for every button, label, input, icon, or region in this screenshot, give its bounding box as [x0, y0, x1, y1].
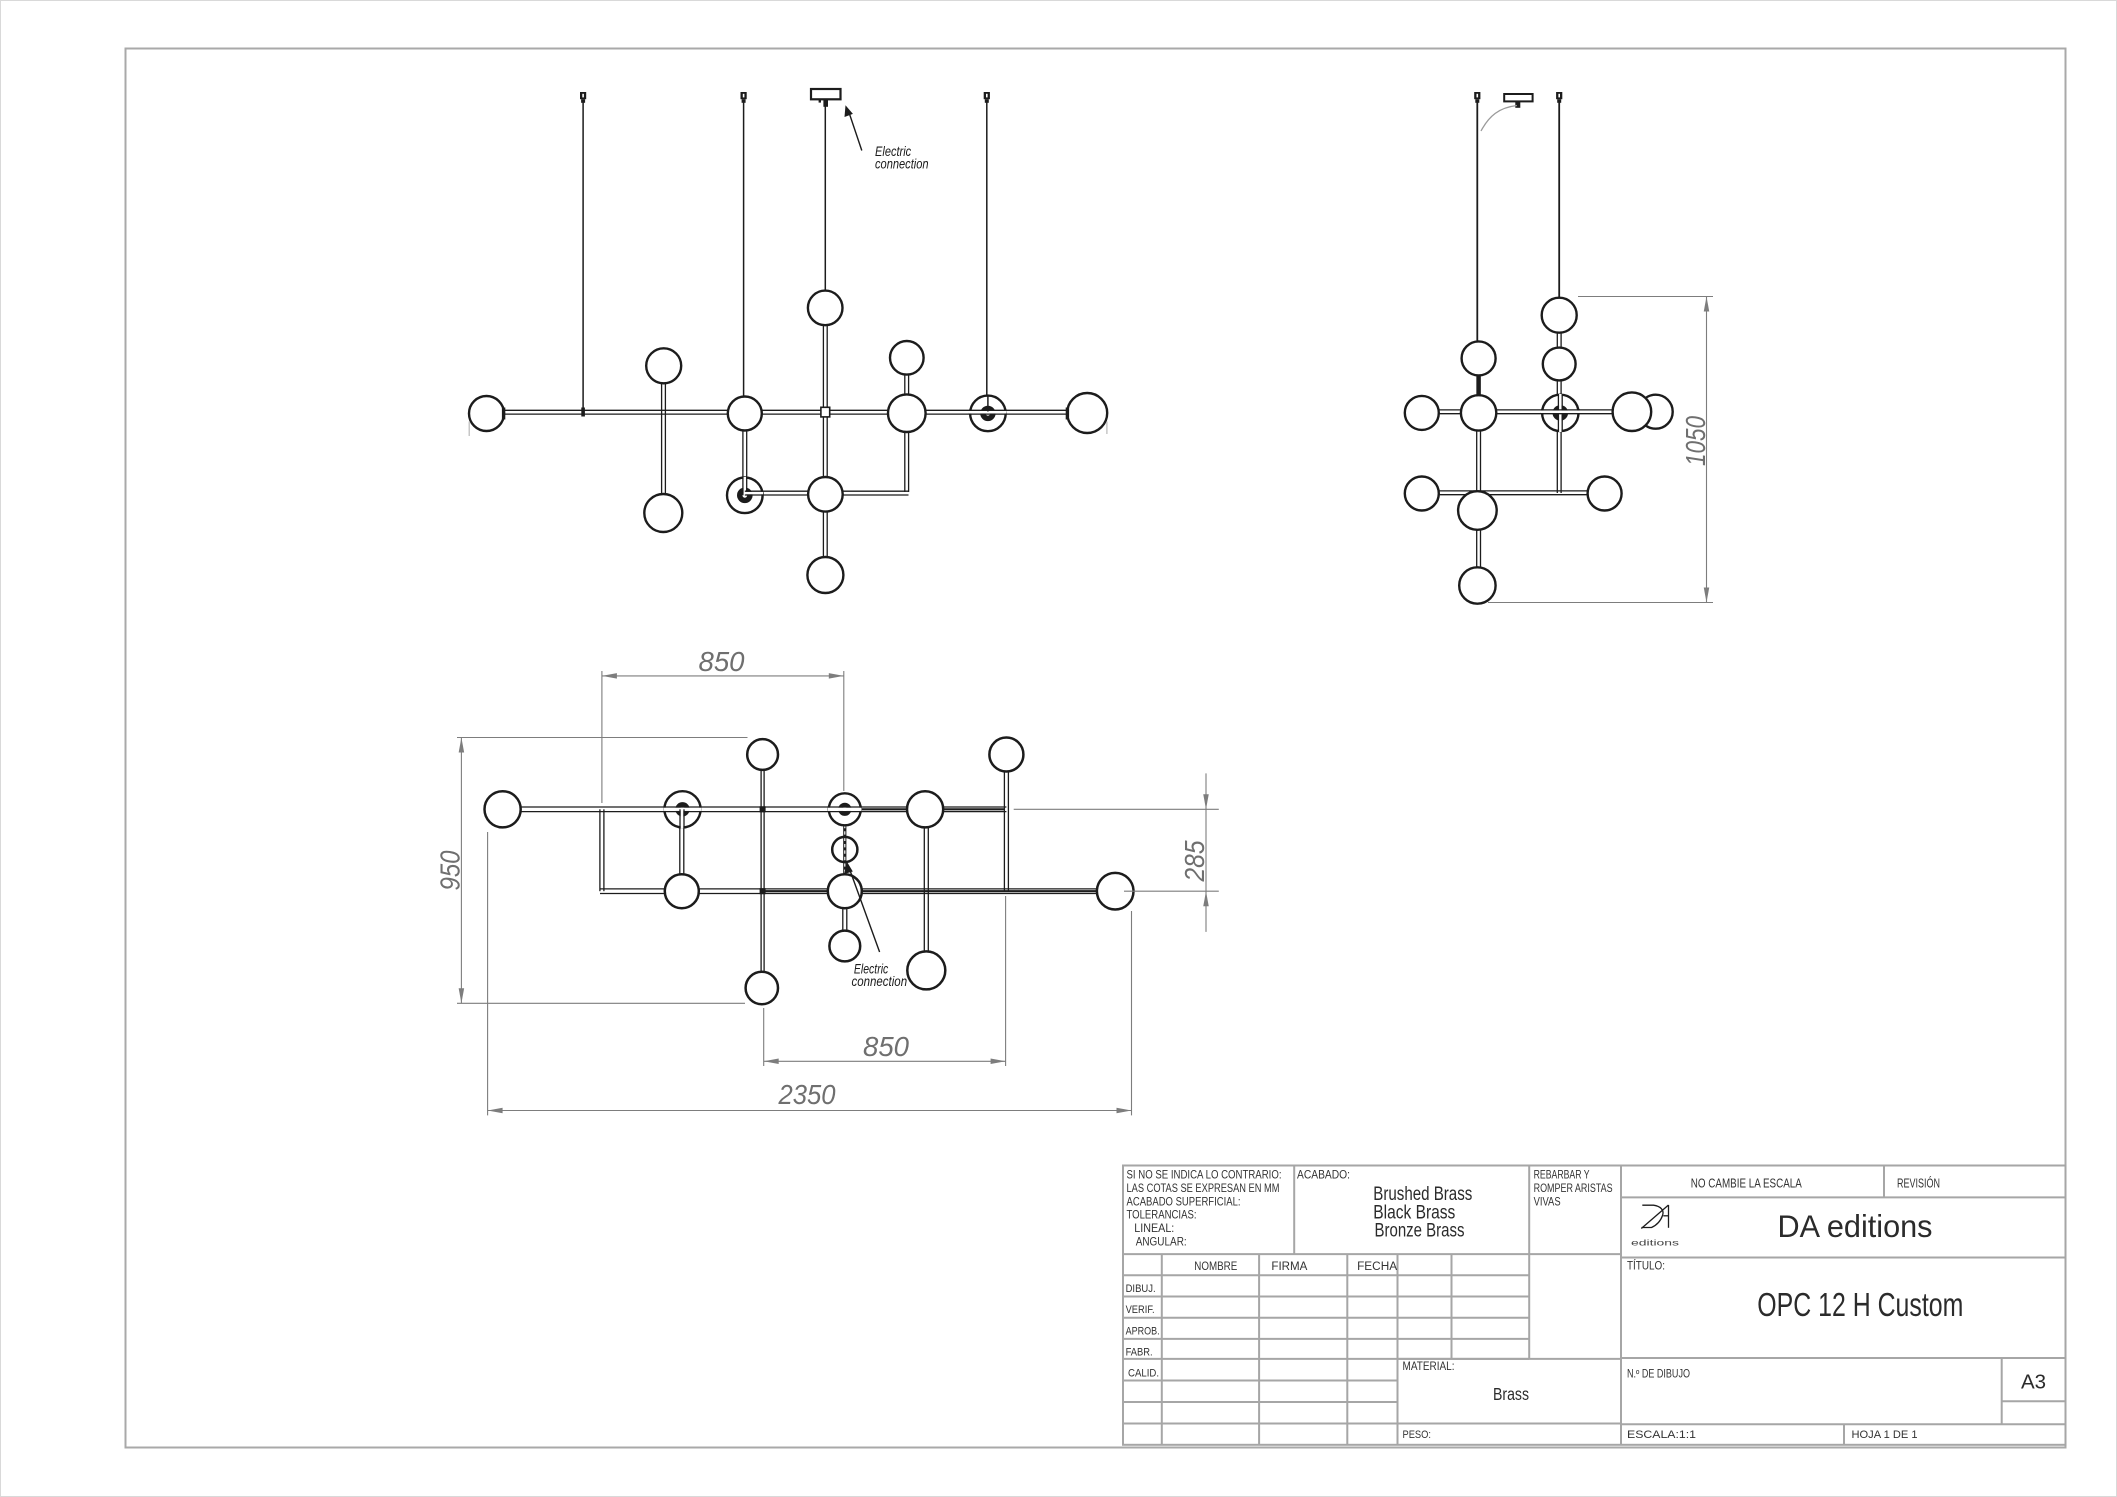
svg-text:APROB.: APROB. [1126, 1325, 1160, 1337]
svg-text:950: 950 [435, 850, 466, 890]
svg-text:FABR.: FABR. [1126, 1347, 1153, 1359]
svg-text:ACABADO:: ACABADO: [1297, 1170, 1350, 1182]
svg-text:ACABADO SUPERFICIAL:: ACABADO SUPERFICIAL: [1127, 1196, 1241, 1208]
svg-text:CALID.: CALID. [1128, 1368, 1159, 1380]
svg-text:SI NO SE INDICA LO CONTRARIO:: SI NO SE INDICA LO CONTRARIO: [1127, 1170, 1282, 1182]
svg-text:850: 850 [863, 1031, 909, 1062]
svg-text:REVISIÓN: REVISIÓN [1897, 1176, 1940, 1191]
svg-text:285: 285 [1179, 840, 1210, 882]
svg-text:850: 850 [699, 646, 745, 677]
svg-text:Bronze Brass: Bronze Brass [1375, 1221, 1465, 1242]
svg-text:A3: A3 [2021, 1371, 2046, 1394]
svg-text:editions: editions [1631, 1239, 1679, 1248]
svg-text:connection: connection [852, 974, 908, 989]
svg-text:Brass: Brass [1493, 1384, 1529, 1404]
svg-text:NO CAMBIE LA ESCALA: NO CAMBIE LA ESCALA [1691, 1177, 1803, 1191]
svg-text:1050: 1050 [1680, 416, 1711, 466]
svg-text:connection: connection [875, 157, 929, 172]
svg-text:ROMPER ARISTAS: ROMPER ARISTAS [1534, 1183, 1613, 1195]
svg-text:LAS COTAS SE EXPRESAN EN MM: LAS COTAS SE EXPRESAN EN MM [1127, 1183, 1280, 1195]
svg-text:N.º DE DIBUJO: N.º DE DIBUJO [1627, 1369, 1690, 1381]
svg-text:HOJA 1 DE 1: HOJA 1 DE 1 [1852, 1429, 1918, 1441]
svg-text:REBARBAR Y: REBARBAR Y [1534, 1170, 1590, 1182]
svg-text:PESO:: PESO: [1403, 1429, 1432, 1441]
svg-text:LINEAL:: LINEAL: [1134, 1223, 1174, 1235]
svg-text:VERIF.: VERIF. [1126, 1304, 1155, 1316]
svg-text:NOMBRE: NOMBRE [1194, 1261, 1237, 1273]
svg-text:TOLERANCIAS:: TOLERANCIAS: [1127, 1210, 1197, 1222]
svg-text:DIBUJ.: DIBUJ. [1126, 1283, 1156, 1295]
svg-text:OPC 12 H Custom: OPC 12 H Custom [1757, 1286, 1963, 1323]
svg-text:ESCALA:1:1: ESCALA:1:1 [1627, 1429, 1696, 1441]
svg-text:ANGULAR:: ANGULAR: [1136, 1237, 1187, 1249]
svg-text:FECHA: FECHA [1357, 1261, 1397, 1273]
svg-text:MATERIAL:: MATERIAL: [1403, 1361, 1455, 1373]
svg-text:2350: 2350 [778, 1079, 836, 1110]
svg-text:TÍTULO:: TÍTULO: [1627, 1260, 1665, 1273]
svg-text:DA editions: DA editions [1778, 1208, 1933, 1244]
svg-text:VIVAS: VIVAS [1534, 1197, 1561, 1209]
svg-text:FIRMA: FIRMA [1271, 1261, 1307, 1273]
